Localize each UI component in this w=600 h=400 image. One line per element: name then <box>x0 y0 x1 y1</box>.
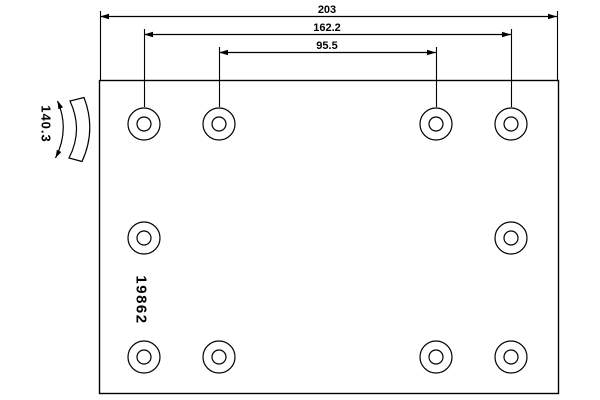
rivet-hole-inner <box>429 350 443 364</box>
rivet-hole-inner <box>212 117 226 131</box>
curvature-arrow-bottom-icon <box>56 150 62 158</box>
rivet-hole-outer <box>128 222 160 254</box>
dimension-arrow-right-icon <box>502 32 511 37</box>
rivet-hole-inner <box>504 117 518 131</box>
dim-label-outer-hole-span: 162.2 <box>313 22 341 34</box>
rivet-hole-outer <box>128 108 160 140</box>
generated-geometry <box>100 11 559 394</box>
rivet-hole-outer <box>203 341 235 373</box>
curvature-arrow-top-icon <box>58 101 64 110</box>
rivet-hole-inner <box>504 231 518 245</box>
dimension-arrow-right-icon <box>427 50 436 55</box>
dim-label-lining-width: 140.3 <box>39 105 54 143</box>
dimension-arrow-left-icon <box>100 14 109 19</box>
technical-drawing: 203 162.2 95.5 140.3 19862 <box>0 0 600 400</box>
curvature-dim-arc <box>56 101 64 158</box>
dimension-arrow-right-icon <box>548 14 557 19</box>
rivet-hole-outer <box>495 222 527 254</box>
part-number: 19862 <box>133 275 150 324</box>
rivet-hole-outer <box>128 341 160 373</box>
dim-label-inner-hole-span: 95.5 <box>316 40 337 52</box>
brake-lining-outline <box>100 81 559 394</box>
dimension-arrow-left-icon <box>144 32 153 37</box>
dim-label-total-width: 203 <box>318 4 336 16</box>
rivet-hole-inner <box>429 117 443 131</box>
brake-lining-drawing: 203 162.2 95.5 140.3 19862 <box>0 0 600 400</box>
rivet-hole-inner <box>137 350 151 364</box>
rivet-hole-outer <box>495 108 527 140</box>
rivet-hole-outer <box>495 341 527 373</box>
rivet-hole-outer <box>420 108 452 140</box>
curvature-symbol <box>56 98 90 162</box>
rivet-hole-inner <box>137 231 151 245</box>
rivet-hole-inner <box>212 350 226 364</box>
rivet-hole-outer <box>420 341 452 373</box>
rivet-hole-inner <box>137 117 151 131</box>
dimension-arrow-left-icon <box>219 50 228 55</box>
rivet-hole-outer <box>203 108 235 140</box>
rivet-hole-inner <box>504 350 518 364</box>
lining-profile-outline <box>69 98 90 162</box>
